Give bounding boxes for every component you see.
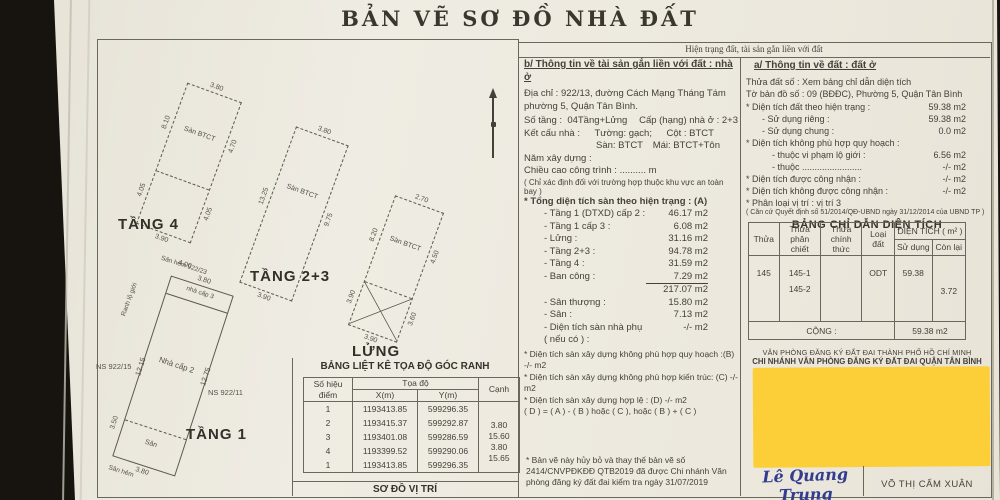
room-label: Sàn BTCT xyxy=(380,232,429,256)
plan-title-tang4: TẦNG 4 xyxy=(118,216,179,233)
office-line1: VĂN PHÒNG ĐĂNG KÝ ĐẤT ĐAI THÀNH PHỐ HỒ C… xyxy=(746,348,988,357)
total-row: CỘNG : 59.38 m2 xyxy=(749,322,966,340)
land-row: * Diện tích không phù hợp quy hoạch : xyxy=(746,137,988,149)
status-header: Hiện trạng đất, tài sản gắn liền với đất xyxy=(520,44,988,54)
edge-length: 3.80 xyxy=(481,442,517,452)
floors: Số tầng : 04Tầng+Lửng xyxy=(524,115,627,128)
map-sheet: Tờ bản đồ số : 09 (BĐĐC), Phường 5, Quận… xyxy=(746,88,988,100)
edge-length: 3.80 xyxy=(481,420,517,430)
col-header: Cạnh xyxy=(479,378,520,402)
note-c: * Diện tích sàn xây dựng không phù hợp k… xyxy=(524,372,738,395)
col-header: Sử dụng xyxy=(894,239,932,256)
y-coord: 599296.35 xyxy=(418,402,479,417)
roof-struct: Mái: BTCT+Tôn xyxy=(653,140,720,153)
x-coord: 1193413.85 xyxy=(353,402,418,417)
land-row: - Sử dụng riêng :59.38 m2 xyxy=(746,113,988,125)
year-built: Năm xây dựng : xyxy=(524,153,738,166)
total-area-heading: * Tổng diện tích sàn theo hiện trạng : (… xyxy=(524,196,738,209)
col-header: Thửachính thức xyxy=(820,223,862,256)
area-index-table: Thửa Thửaphân chiết Thửachính thức Loại … xyxy=(748,222,966,340)
col-header: Tọa độ xyxy=(353,378,479,390)
building-info-column: b/ Thông tin về tài sản gắn liền với đất… xyxy=(524,59,738,418)
header-divider xyxy=(518,57,990,58)
land-row: * Diện tích đất theo hiện trạng :59.38 m… xyxy=(746,101,988,113)
land-info-column: a/ Thông tin về đất : đất ở Thửa đất số … xyxy=(746,60,988,231)
floor-struct: Sàn: BTCT xyxy=(596,140,643,153)
room-label: Sàn BTCT xyxy=(172,121,227,147)
note-formula: ( D ) = ( A ) - ( B ) hoặc ( C ), hoặc (… xyxy=(524,406,738,418)
y-coord: 599286.59 xyxy=(418,430,479,444)
room-label: Sàn BTCT xyxy=(275,179,328,204)
edge-length: 15.60 xyxy=(481,431,517,441)
x-coord: 1193415.37 xyxy=(353,416,418,430)
drawing-footnote: * Bản vẽ này hủy bỏ và thay thế bản vẽ s… xyxy=(526,455,734,488)
address-line2: phường 5, Quận Tân Bình. xyxy=(524,101,738,114)
legal-reference: ( Căn cứ Quyết định số 51/2014/QĐ-UBND n… xyxy=(746,209,988,217)
height-note: ( Chỉ xác định đối với trường hợp thuộc … xyxy=(524,178,738,196)
col-header: X(m) xyxy=(353,390,418,402)
grade: Cấp (hạng) nhà ở : 2+3 xyxy=(639,115,738,128)
y-coord: 599292.87 xyxy=(418,416,479,430)
area-row: - Diện tích sàn nhà phụ ( nếu có ) :-/- … xyxy=(544,322,738,347)
col-header: điểm xyxy=(306,390,350,401)
edge-lengths: 3.80 15.60 3.80 15.65 xyxy=(479,402,520,473)
land-row: - Sử dụng chung :0.0 m2 xyxy=(746,125,988,137)
neighbor-label-right: NS 922/11 xyxy=(208,388,243,397)
signature-script: Lê Quang Trung xyxy=(747,464,863,500)
note-d: * Diện tích sàn xây dựng hợp lệ : (D) -/… xyxy=(524,395,738,407)
col-header: Thửaphân chiết xyxy=(779,223,820,256)
land-row: * Phân loại vị trí : vị trí 3 xyxy=(746,197,988,209)
land-row: * Diện tích được công nhận :-/- m2 xyxy=(746,173,988,185)
wall: Tường: gạch; xyxy=(594,128,651,141)
area-row: - Sân thượng :15.80 m2 xyxy=(544,297,738,310)
x-coord: 1193413.85 xyxy=(353,458,418,473)
location-map-label: SƠ ĐỒ VỊ TRÍ xyxy=(292,484,518,495)
office-line2: CHI NHÁNH VĂN PHÒNG ĐĂNG KÝ ĐẤT ĐAI QUẬN… xyxy=(744,357,990,366)
col-header: DIỆN TÍCH ( m² ) xyxy=(894,223,965,240)
neighbor-label-left: NS 922/15 xyxy=(96,362,131,371)
area-used: 59.38 xyxy=(894,256,932,322)
col-header: Y(m) xyxy=(418,390,479,402)
plan-title-tang1: TẦNG 1 xyxy=(186,426,247,443)
coord-table-title: BẢNG LIỆT KÊ TỌA ĐỘ GÓC RANH xyxy=(296,361,514,372)
point-id: 1 xyxy=(304,458,353,473)
area-row: - Tầng 4 :31.59 m2 xyxy=(544,258,738,271)
area-row: - Ban công :7.29 m2 xyxy=(544,271,738,285)
official-parcel xyxy=(820,256,862,322)
total-value: 59.38 m2 xyxy=(894,322,965,340)
footer-divider xyxy=(292,481,518,482)
table-row: 145 145-1 145-2 ODT 59.38 3.72 xyxy=(749,256,966,322)
north-arrow-icon xyxy=(488,88,498,160)
col-header: Thửa xyxy=(749,223,780,256)
col-header: Còn lại xyxy=(932,239,965,256)
point-id: 3 xyxy=(304,430,353,444)
area-row: - Tầng 1 cấp 3 :6.08 m2 xyxy=(544,221,738,234)
scanned-land-survey-document: BẢN VẼ SƠ ĐỒ NHÀ ĐẤT Hiện trạng đất, tài… xyxy=(0,0,1000,500)
redaction-block xyxy=(753,366,991,468)
point-id: 2 xyxy=(304,416,353,430)
section-heading: a/ Thông tin về đất : đất ở xyxy=(754,60,988,72)
parcel-id: 145 xyxy=(749,256,780,322)
y-coord: 599296.35 xyxy=(418,458,479,473)
section-label: Nhà cấp 2 xyxy=(145,351,209,379)
point-id: 1 xyxy=(304,402,353,417)
col-header: Loại đất xyxy=(862,223,894,256)
plan-divider xyxy=(156,170,209,190)
signer-name: VÕ THỊ CẨM XUÂN xyxy=(868,479,986,490)
total-label: CỘNG : xyxy=(749,322,895,340)
land-row: - thuộc ........................-/- m2 xyxy=(746,161,988,173)
x-coord: 1193401.08 xyxy=(353,430,418,444)
signature-divider xyxy=(863,466,864,496)
land-type: ODT xyxy=(862,256,894,322)
col-header: Số hiệu xyxy=(306,379,350,390)
y-coord: 599290.06 xyxy=(418,444,479,458)
note-b: * Diện tích sàn xây dựng không phù hợp q… xyxy=(524,349,738,372)
area-row: - Sân :7.13 m2 xyxy=(544,309,738,322)
section-heading: b/ Thông tin về tài sản gắn liền với đất… xyxy=(524,59,738,84)
document-title: BẢN VẼ SƠ ĐỒ NHÀ ĐẤT xyxy=(120,6,920,31)
table-area-divider xyxy=(292,358,293,496)
area-row: - Tầng 1 (DTXD) cấp 2 :46.17 m2 xyxy=(544,208,738,221)
structure-label: Kết cấu nhà : xyxy=(524,128,580,141)
edge-length: 15.65 xyxy=(481,453,517,463)
area-remaining: 3.72 xyxy=(932,256,965,322)
building-height: Chiều cao công trình : .......... m xyxy=(524,165,738,178)
address-line1: Địa chỉ : 922/13, đường Cách Mạng Tháng … xyxy=(524,88,738,101)
subtotal-row: 217.07 m2 xyxy=(544,284,738,297)
column-divider xyxy=(740,57,741,496)
plan-title-lung: LỬNG xyxy=(352,343,400,360)
x-coord: 1193399.52 xyxy=(353,444,418,458)
column-struct: Cột : BTCT xyxy=(666,128,714,141)
coord-table: Số hiệu điểm Tọa độ Cạnh X(m) Y(m) 1 119… xyxy=(303,377,520,473)
sub-parcel-ids: 145-1 145-2 xyxy=(779,256,820,322)
area-row: - Tầng 2+3 :94.78 m2 xyxy=(544,246,738,259)
area-row: - Lửng :31.16 m2 xyxy=(544,233,738,246)
paper-right-edge xyxy=(992,0,994,500)
parcel-number: Thửa đất số : Xem bảng chỉ dẫn diện tích xyxy=(746,76,988,88)
point-id: 4 xyxy=(304,444,353,458)
land-row: - thuộc vi phạm lộ giới :6.56 m2 xyxy=(746,149,988,161)
table-row: 1 1193413.85 599296.35 3.80 15.60 3.80 1… xyxy=(304,402,520,417)
land-row: * Diện tích không được công nhận :-/- m2 xyxy=(746,185,988,197)
plan-title-tang23: TẦNG 2+3 xyxy=(250,268,330,285)
